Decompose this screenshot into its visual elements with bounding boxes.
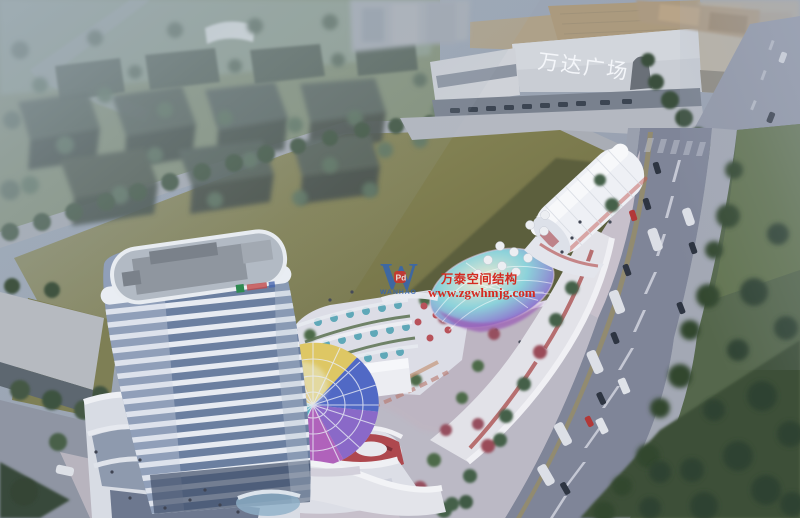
svg-text:www.zgwhmjg.com: www.zgwhmjg.com (428, 285, 536, 300)
svg-text:万泰空间结构: 万泰空间结构 (440, 271, 518, 286)
svg-text:WANHAO: WANHAO (380, 289, 417, 296)
svg-text:Pd: Pd (396, 273, 407, 283)
